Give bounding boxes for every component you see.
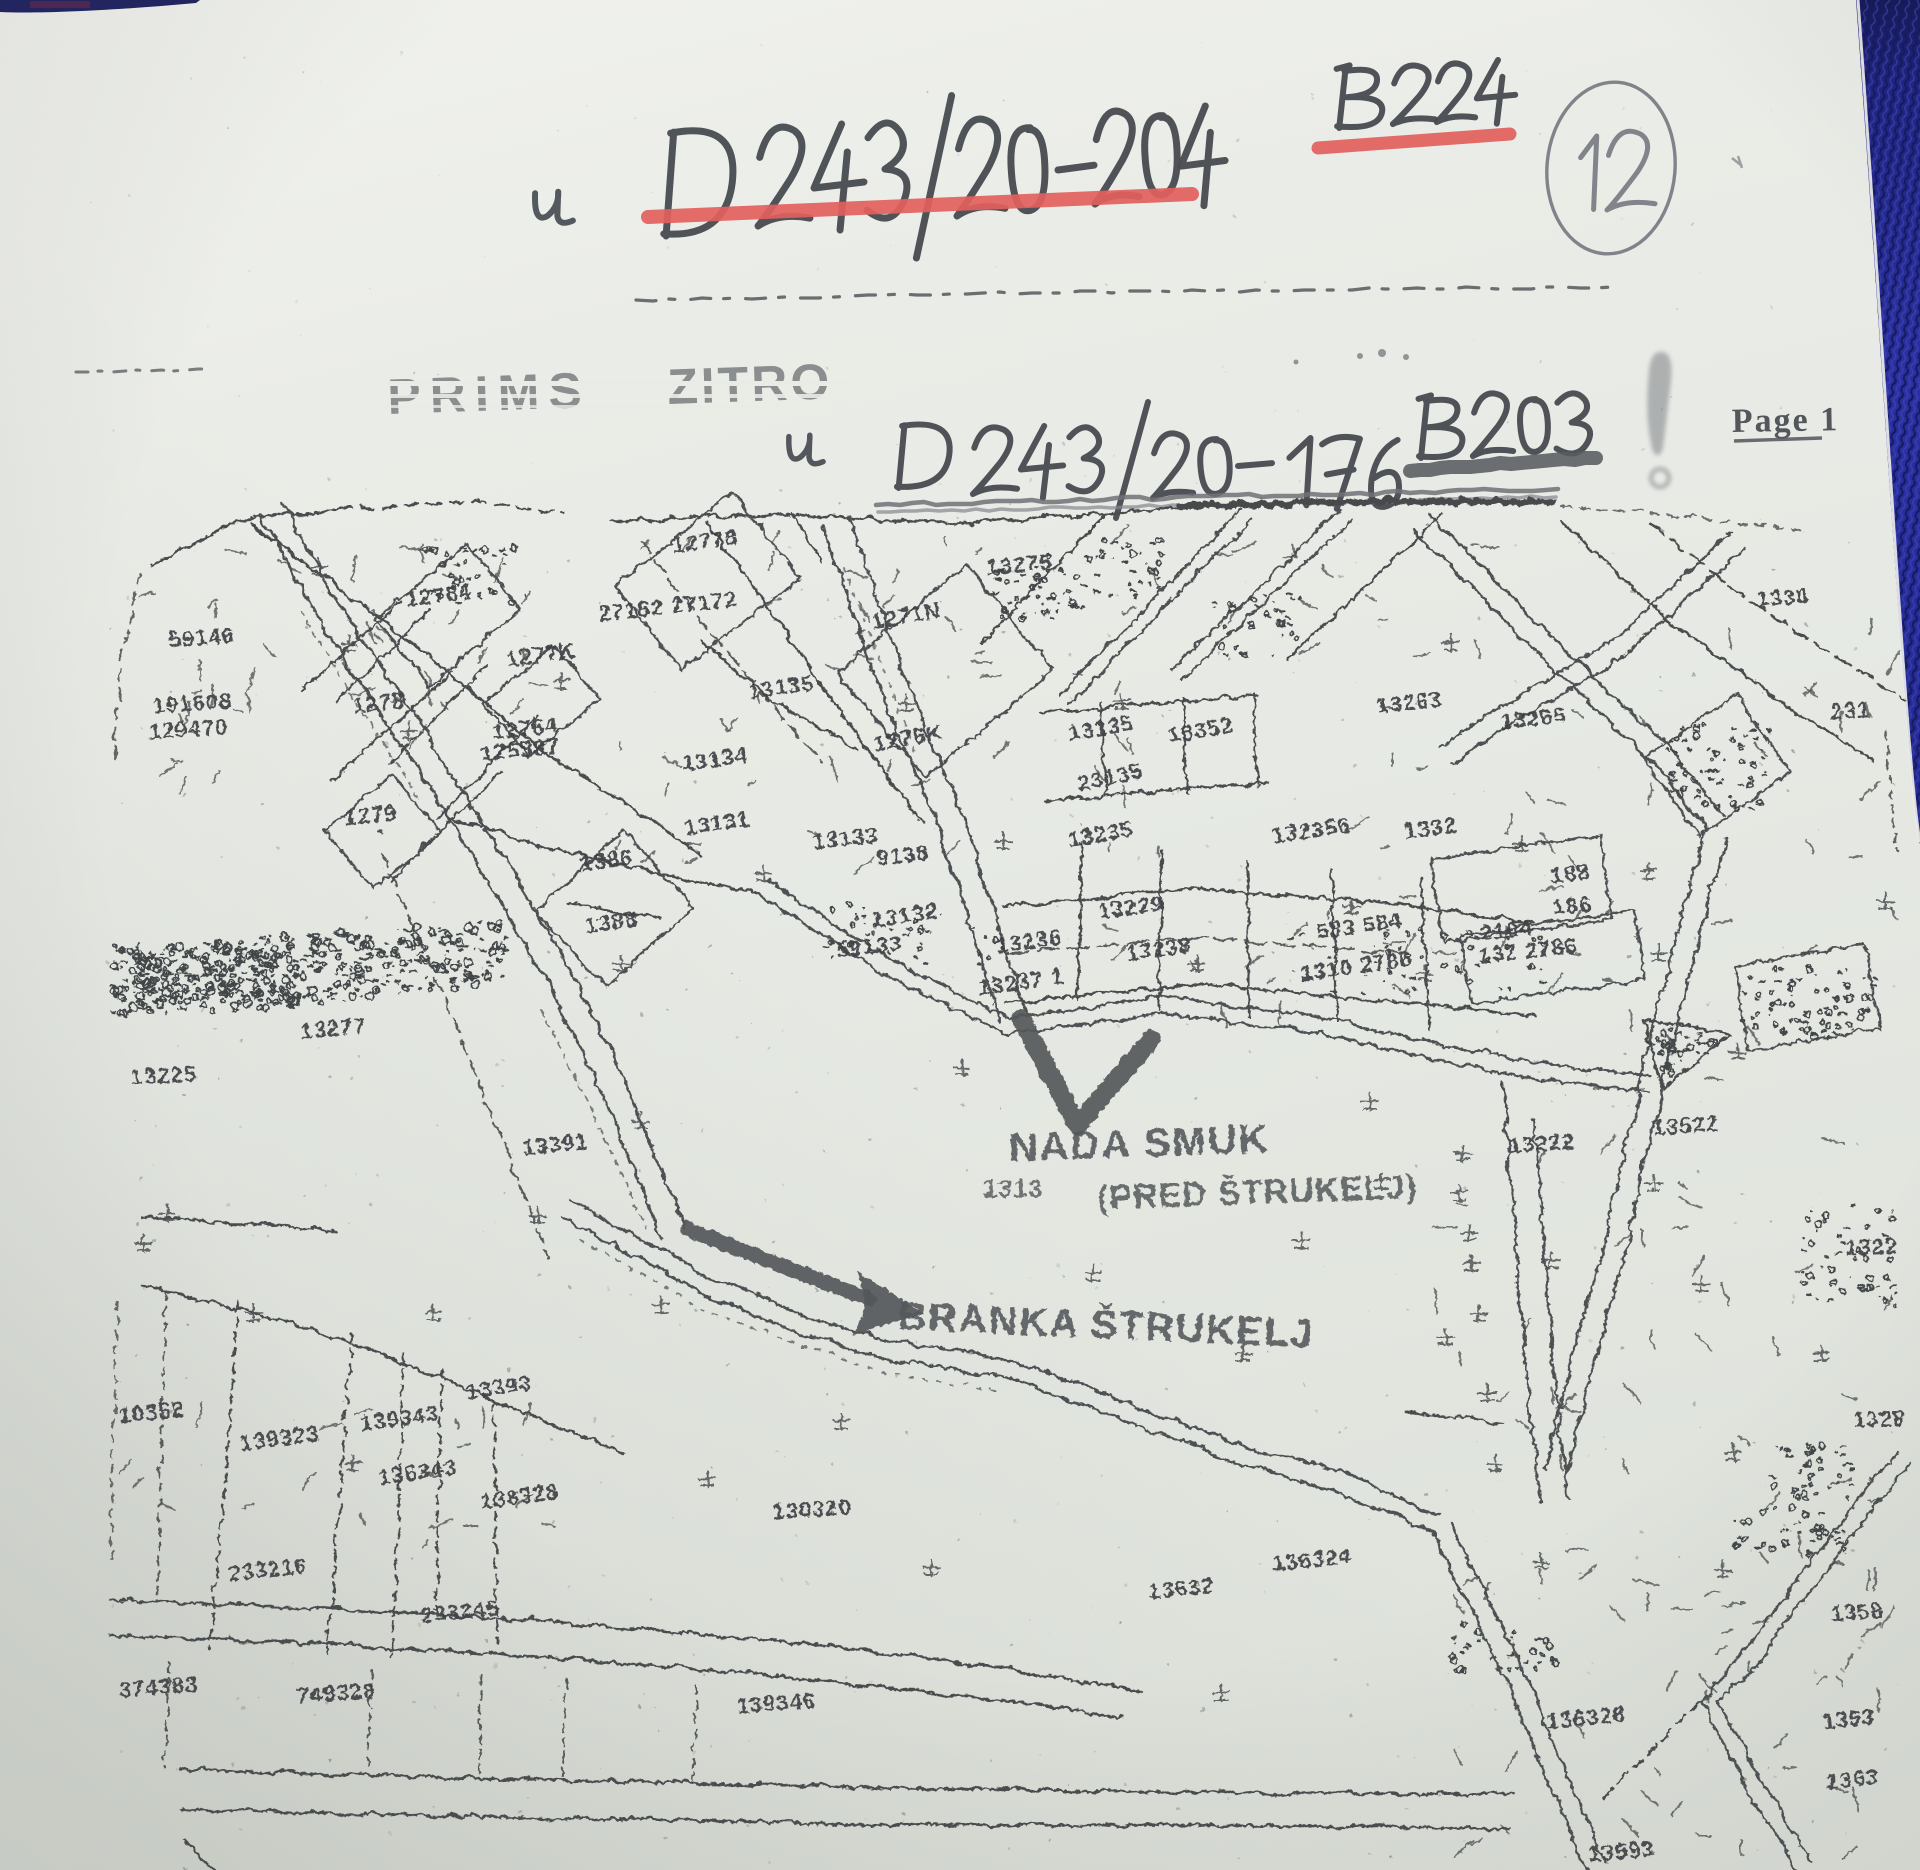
svg-text:13225: 13225 [129, 1059, 197, 1089]
svg-text:PRIMS: PRIMS [386, 362, 591, 425]
svg-text:Page 1: Page 1 [1731, 401, 1839, 440]
svg-text:1328: 1328 [1851, 1404, 1905, 1431]
svg-text:188: 188 [1548, 858, 1590, 887]
svg-text:13593: 13593 [1587, 1835, 1655, 1865]
svg-text:1322: 1322 [1843, 1232, 1897, 1259]
svg-text:13522: 13522 [1651, 1109, 1719, 1139]
svg-text:59146: 59146 [167, 621, 235, 651]
svg-text:1313: 1313 [982, 1174, 1042, 1202]
svg-text:186: 186 [1550, 890, 1592, 919]
svg-text:NADA SMUK: NADA SMUK [1007, 1116, 1269, 1169]
svg-text:1330: 1330 [1755, 582, 1810, 611]
svg-text:1358: 1358 [1829, 1596, 1884, 1625]
svg-text:231: 231 [1829, 695, 1870, 723]
